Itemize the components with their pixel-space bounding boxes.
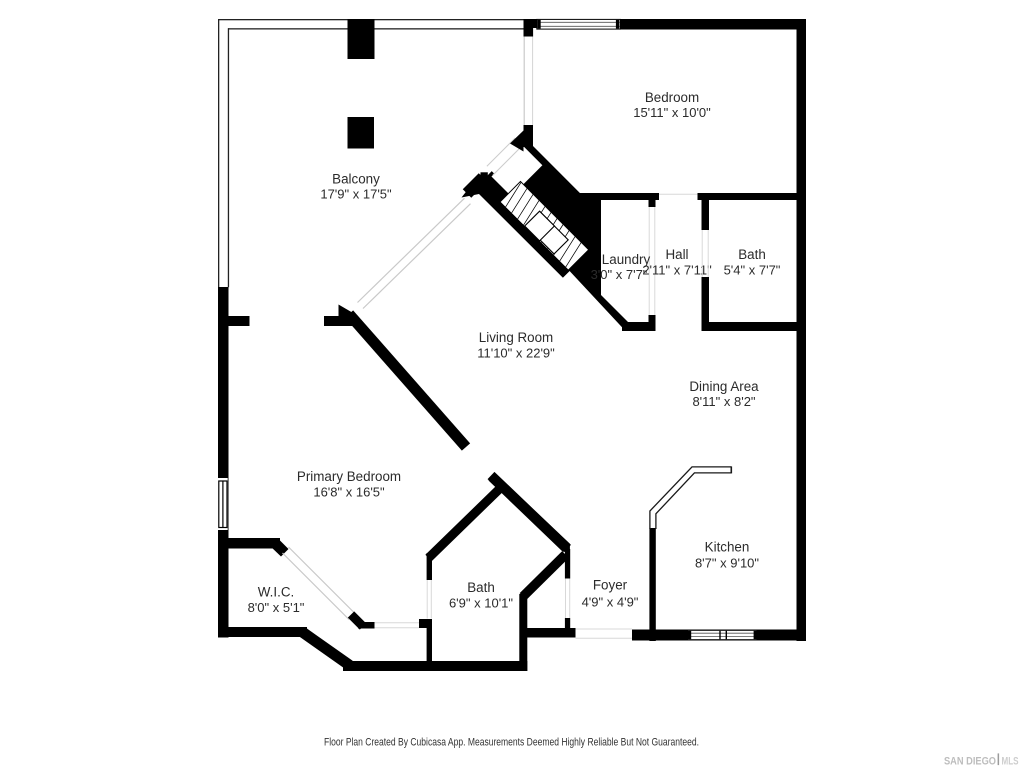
svg-text:8'7" x 9'10": 8'7" x 9'10" (695, 556, 759, 571)
svg-text:16'8" x 16'5": 16'8" x 16'5" (313, 485, 385, 500)
svg-text:15'11" x 10'0": 15'11" x 10'0" (633, 105, 711, 120)
svg-text:11'10" x 22'9": 11'10" x 22'9" (477, 346, 555, 361)
svg-text:17'9" x 17'5": 17'9" x 17'5" (320, 187, 392, 202)
svg-text:8'0" x 5'1": 8'0" x 5'1" (248, 600, 305, 615)
svg-text:Bath: Bath (738, 247, 766, 262)
svg-text:2'11" x 7'11": 2'11" x 7'11" (642, 263, 712, 278)
svg-text:8'11" x 8'2": 8'11" x 8'2" (692, 394, 755, 409)
svg-text:Hall: Hall (665, 247, 688, 262)
svg-text:W.I.C.: W.I.C. (258, 585, 294, 600)
svg-text:Bath: Bath (467, 580, 495, 595)
svg-text:Balcony: Balcony (332, 172, 380, 187)
svg-text:Living Room: Living Room (479, 330, 553, 345)
svg-text:Dining Area: Dining Area (689, 379, 759, 394)
svg-text:MLS: MLS (1002, 756, 1019, 768)
svg-text:Kitchen: Kitchen (705, 540, 750, 555)
svg-text:3'0" x 7'7": 3'0" x 7'7" (591, 267, 648, 282)
svg-text:4'9" x 4'9": 4'9" x 4'9" (582, 595, 639, 610)
svg-text:Floor Plan Created By Cubicasa: Floor Plan Created By Cubicasa App. Meas… (324, 737, 699, 749)
svg-text:5'4" x 7'7": 5'4" x 7'7" (724, 263, 781, 278)
svg-text:Foyer: Foyer (593, 578, 628, 593)
svg-text:Bedroom: Bedroom (645, 90, 699, 105)
svg-text:SAN DIEGO: SAN DIEGO (944, 756, 996, 768)
svg-text:Primary Bedroom: Primary Bedroom (297, 469, 401, 484)
svg-text:6'9" x 10'1": 6'9" x 10'1" (449, 596, 513, 611)
